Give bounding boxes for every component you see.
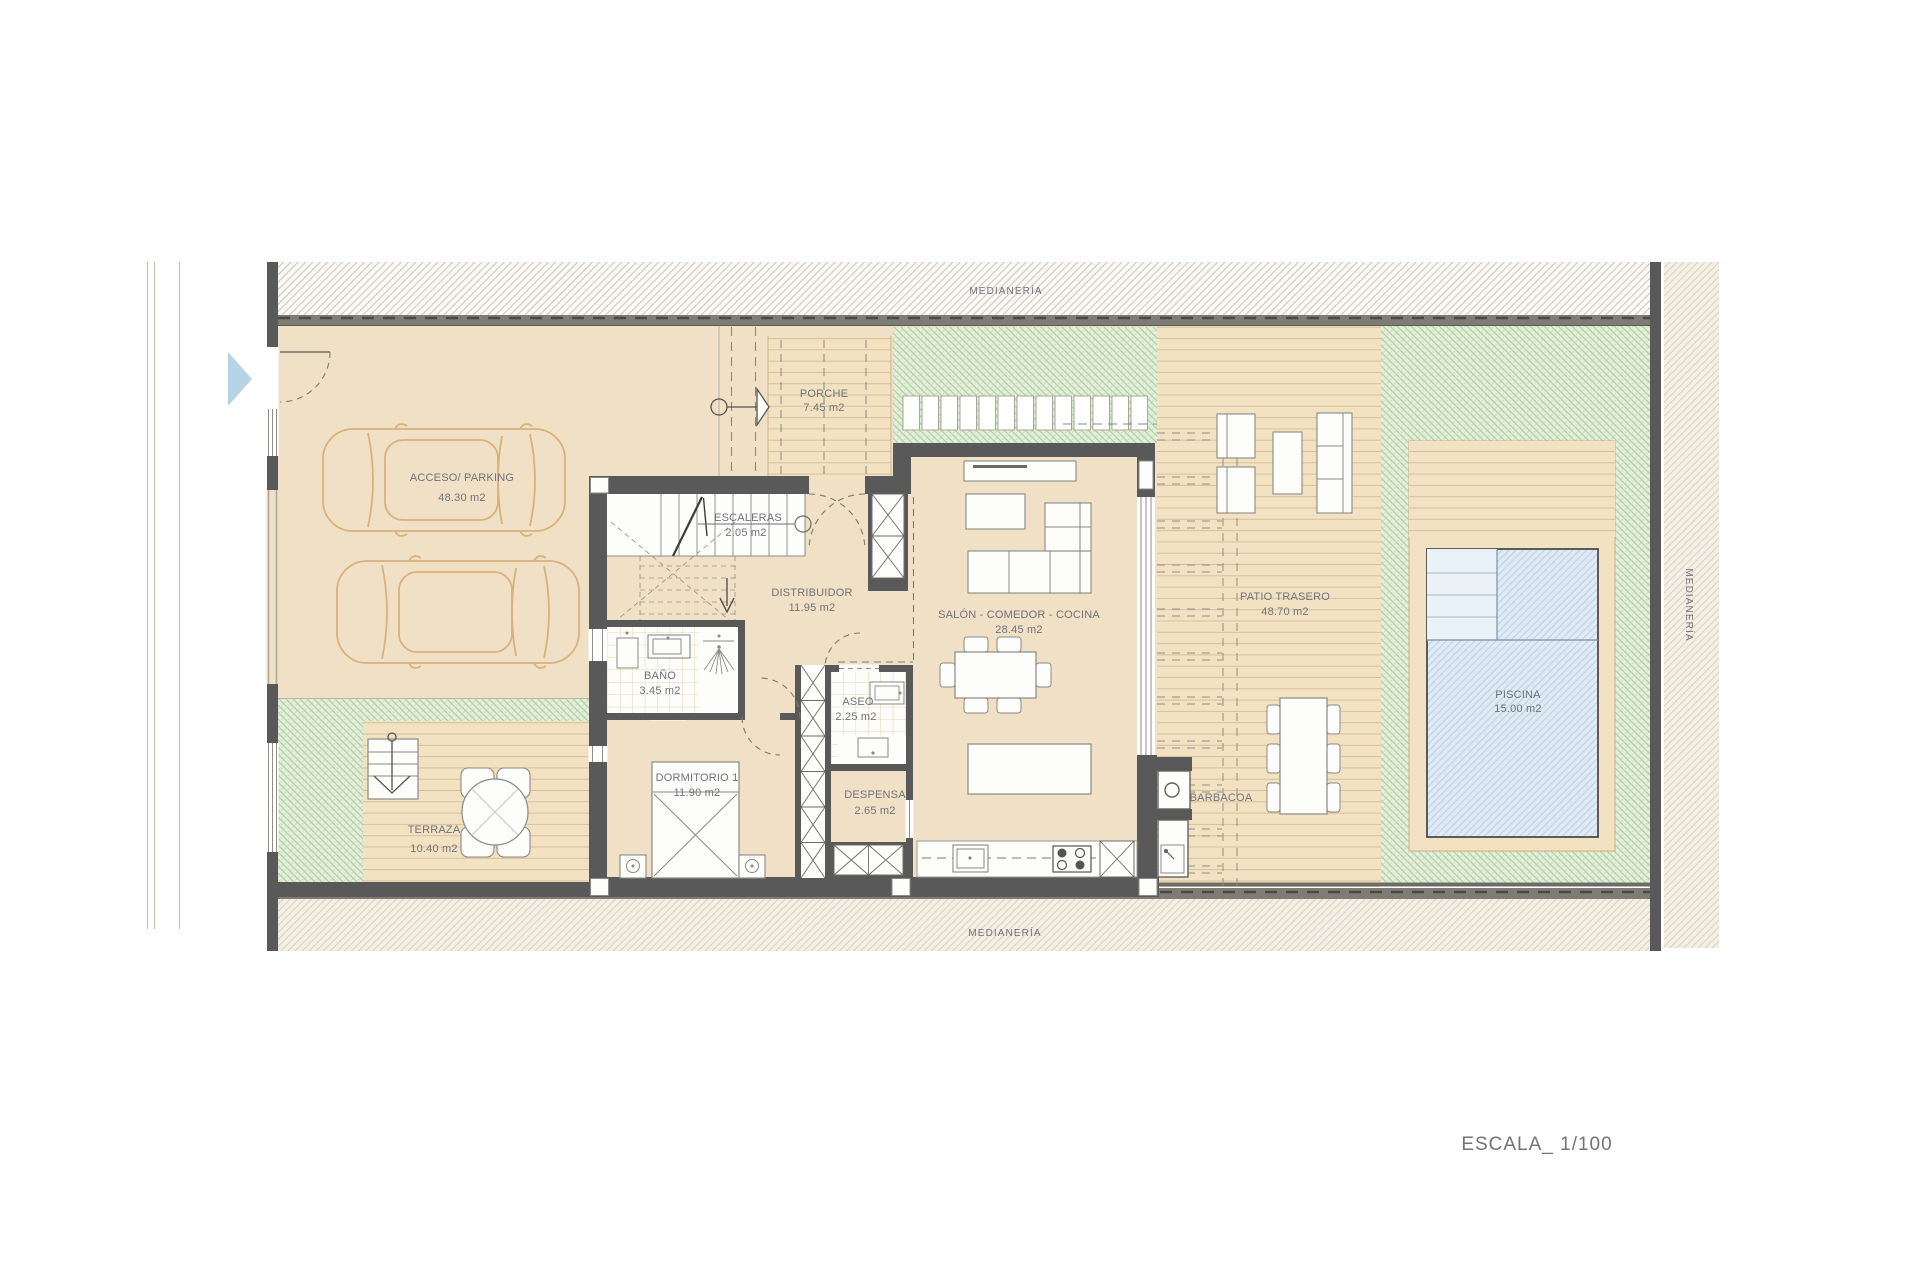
svg-text:3.45 m2: 3.45 m2 (639, 685, 680, 697)
svg-text:ESCALERAS: ESCALERAS (714, 512, 782, 524)
svg-text:DISTRIBUIDOR: DISTRIBUIDOR (771, 587, 852, 599)
svg-text:ACCESO/ PARKING: ACCESO/ PARKING (410, 472, 514, 484)
svg-text:MEDIANERÍA: MEDIANERÍA (969, 284, 1042, 297)
svg-text:15.00 m2: 15.00 m2 (1494, 703, 1541, 715)
svg-text:PISCINA: PISCINA (1495, 689, 1541, 701)
svg-text:2.25 m2: 2.25 m2 (835, 711, 876, 723)
svg-text:SALÓN - COMEDOR - COCINA: SALÓN - COMEDOR - COCINA (938, 608, 1100, 621)
svg-text:ASEO: ASEO (842, 696, 874, 708)
svg-text:28.45 m2: 28.45 m2 (995, 624, 1042, 636)
svg-text:MEDIANERÍA: MEDIANERÍA (1683, 568, 1696, 641)
svg-text:TERRAZA: TERRAZA (408, 824, 461, 836)
svg-text:2.05 m2: 2.05 m2 (725, 527, 766, 539)
svg-text:10.40 m2: 10.40 m2 (410, 843, 457, 855)
svg-text:BAÑO: BAÑO (644, 669, 676, 682)
svg-text:11.95 m2: 11.95 m2 (789, 602, 836, 614)
svg-text:MEDIANERÍA: MEDIANERÍA (968, 926, 1041, 939)
svg-text:11.90 m2: 11.90 m2 (674, 787, 721, 799)
svg-text:DESPENSA: DESPENSA (844, 789, 906, 801)
svg-text:48.30 m2: 48.30 m2 (438, 492, 485, 504)
svg-text:ESCALA_ 1/100: ESCALA_ 1/100 (1461, 1134, 1612, 1155)
svg-text:PATIO TRASERO: PATIO TRASERO (1240, 591, 1330, 603)
svg-text:DORMITORIO 1: DORMITORIO 1 (656, 772, 739, 784)
svg-text:48.70 m2: 48.70 m2 (1261, 606, 1308, 618)
svg-text:2.65 m2: 2.65 m2 (854, 805, 895, 817)
svg-text:7.45 m2: 7.45 m2 (803, 402, 844, 414)
svg-text:BARBACOA: BARBACOA (1190, 792, 1253, 804)
svg-text:PORCHE: PORCHE (800, 388, 848, 400)
